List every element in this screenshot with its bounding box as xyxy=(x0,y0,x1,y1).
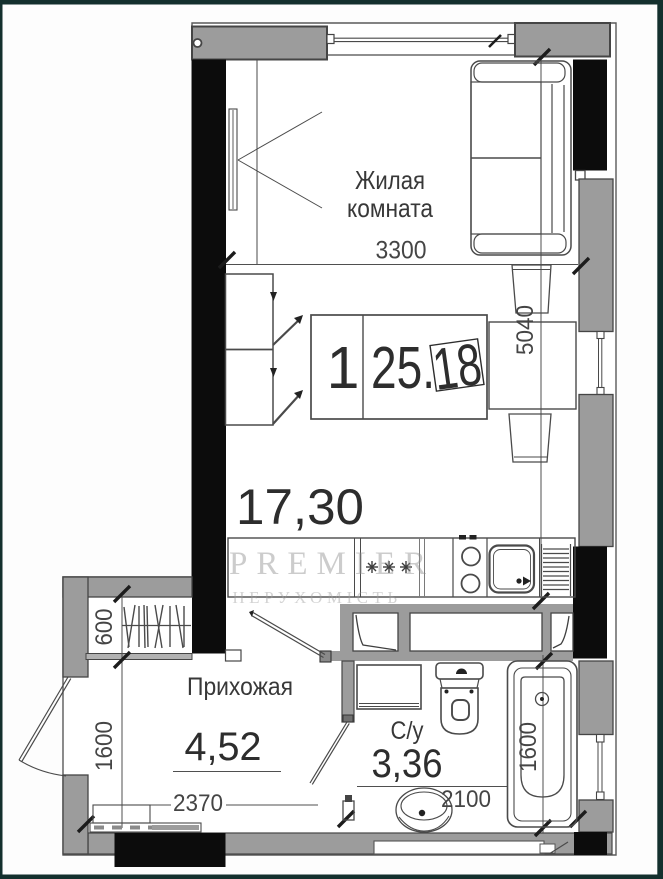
svg-text:PREMIER: PREMIER xyxy=(229,546,435,582)
svg-text:С/у: С/у xyxy=(391,717,424,745)
svg-text:3,36: 3,36 xyxy=(372,742,443,786)
svg-text:1600: 1600 xyxy=(91,721,118,771)
svg-text:5040: 5040 xyxy=(512,305,539,355)
svg-text:2370: 2370 xyxy=(173,790,223,817)
svg-text:17,30: 17,30 xyxy=(236,479,364,535)
svg-text:комната: комната xyxy=(347,193,433,223)
svg-text:НЕРУХОМІСТЬ: НЕРУХОМІСТЬ xyxy=(232,588,401,607)
svg-text:Прихожая: Прихожая xyxy=(187,673,293,701)
svg-text:600: 600 xyxy=(91,609,118,646)
svg-text:18: 18 xyxy=(429,331,486,403)
svg-text:Жилая: Жилая xyxy=(355,165,425,195)
svg-text:1600: 1600 xyxy=(515,722,542,772)
svg-text:1: 1 xyxy=(327,335,360,401)
svg-text:4,52: 4,52 xyxy=(185,725,262,769)
svg-text:2100: 2100 xyxy=(441,786,491,813)
svg-text:3300: 3300 xyxy=(376,237,427,265)
svg-text:25.: 25. xyxy=(371,335,435,401)
